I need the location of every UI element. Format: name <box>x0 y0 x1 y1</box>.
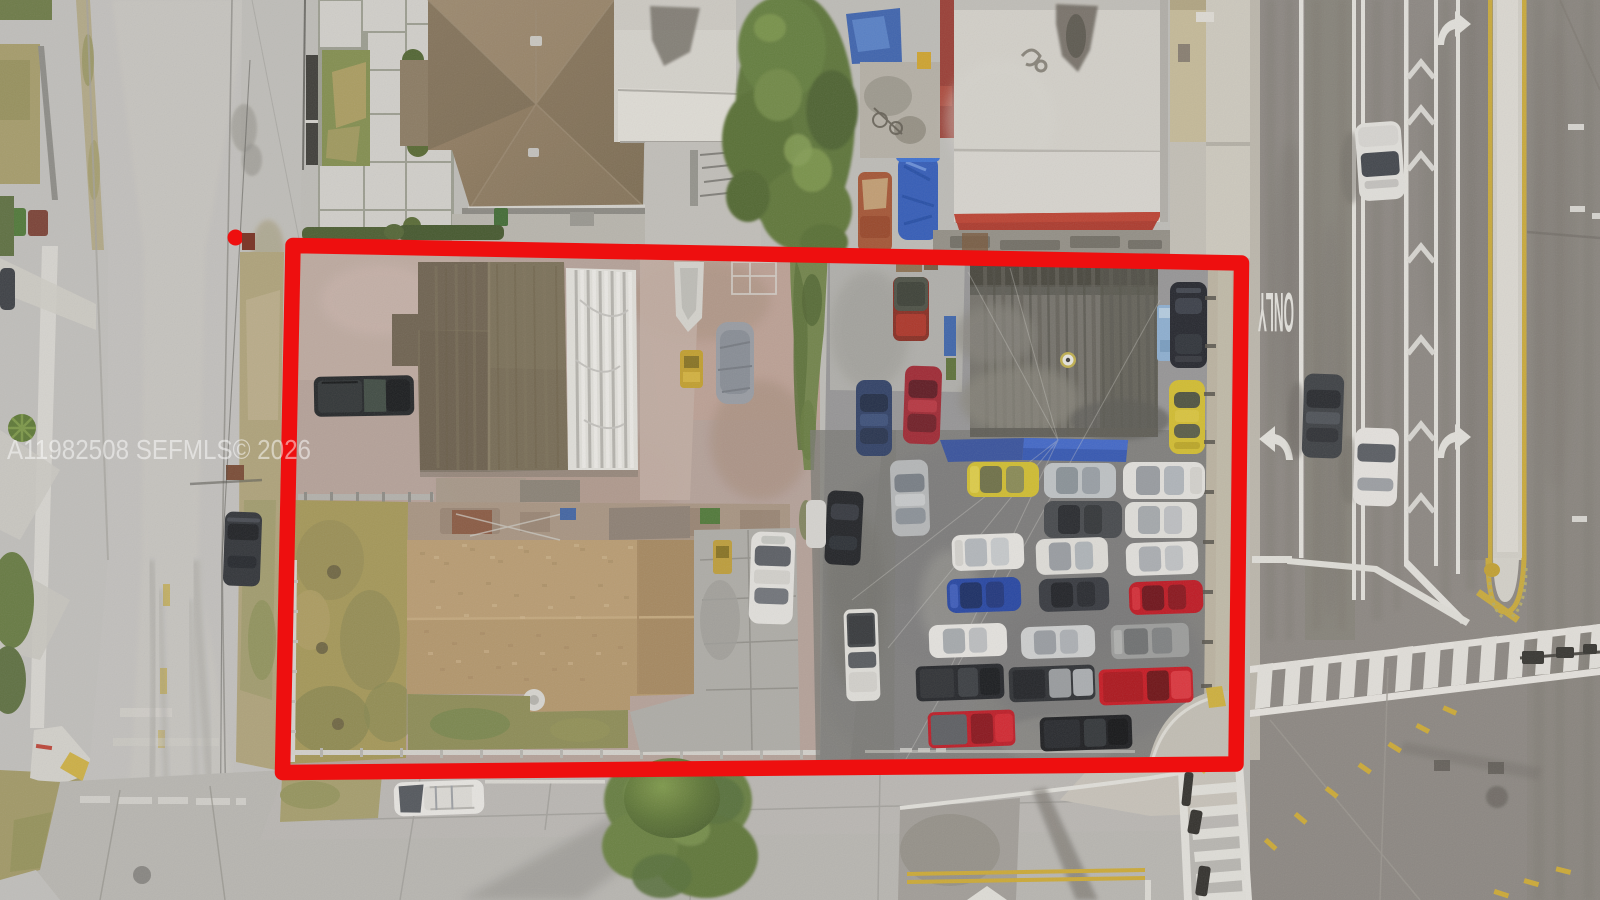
svg-text:A11982508 SEFMLS© 2026: A11982508 SEFMLS© 2026 <box>7 434 311 465</box>
